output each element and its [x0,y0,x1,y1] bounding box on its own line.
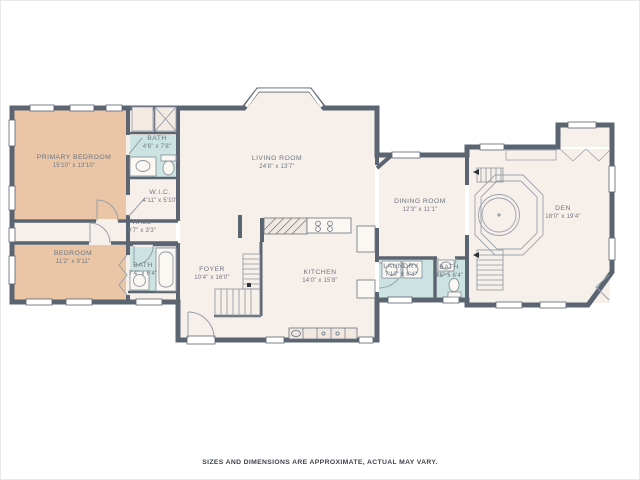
floor-plan-page: PRIMARY BEDROOM 15'10" x 13'10" BATH 4'6… [0,0,640,480]
floor-plan-drawing [0,0,640,480]
front-door-opening [187,336,215,344]
disclaimer-text: SIZES AND DIMENSIONS ARE APPROXIMATE, AC… [202,459,438,466]
